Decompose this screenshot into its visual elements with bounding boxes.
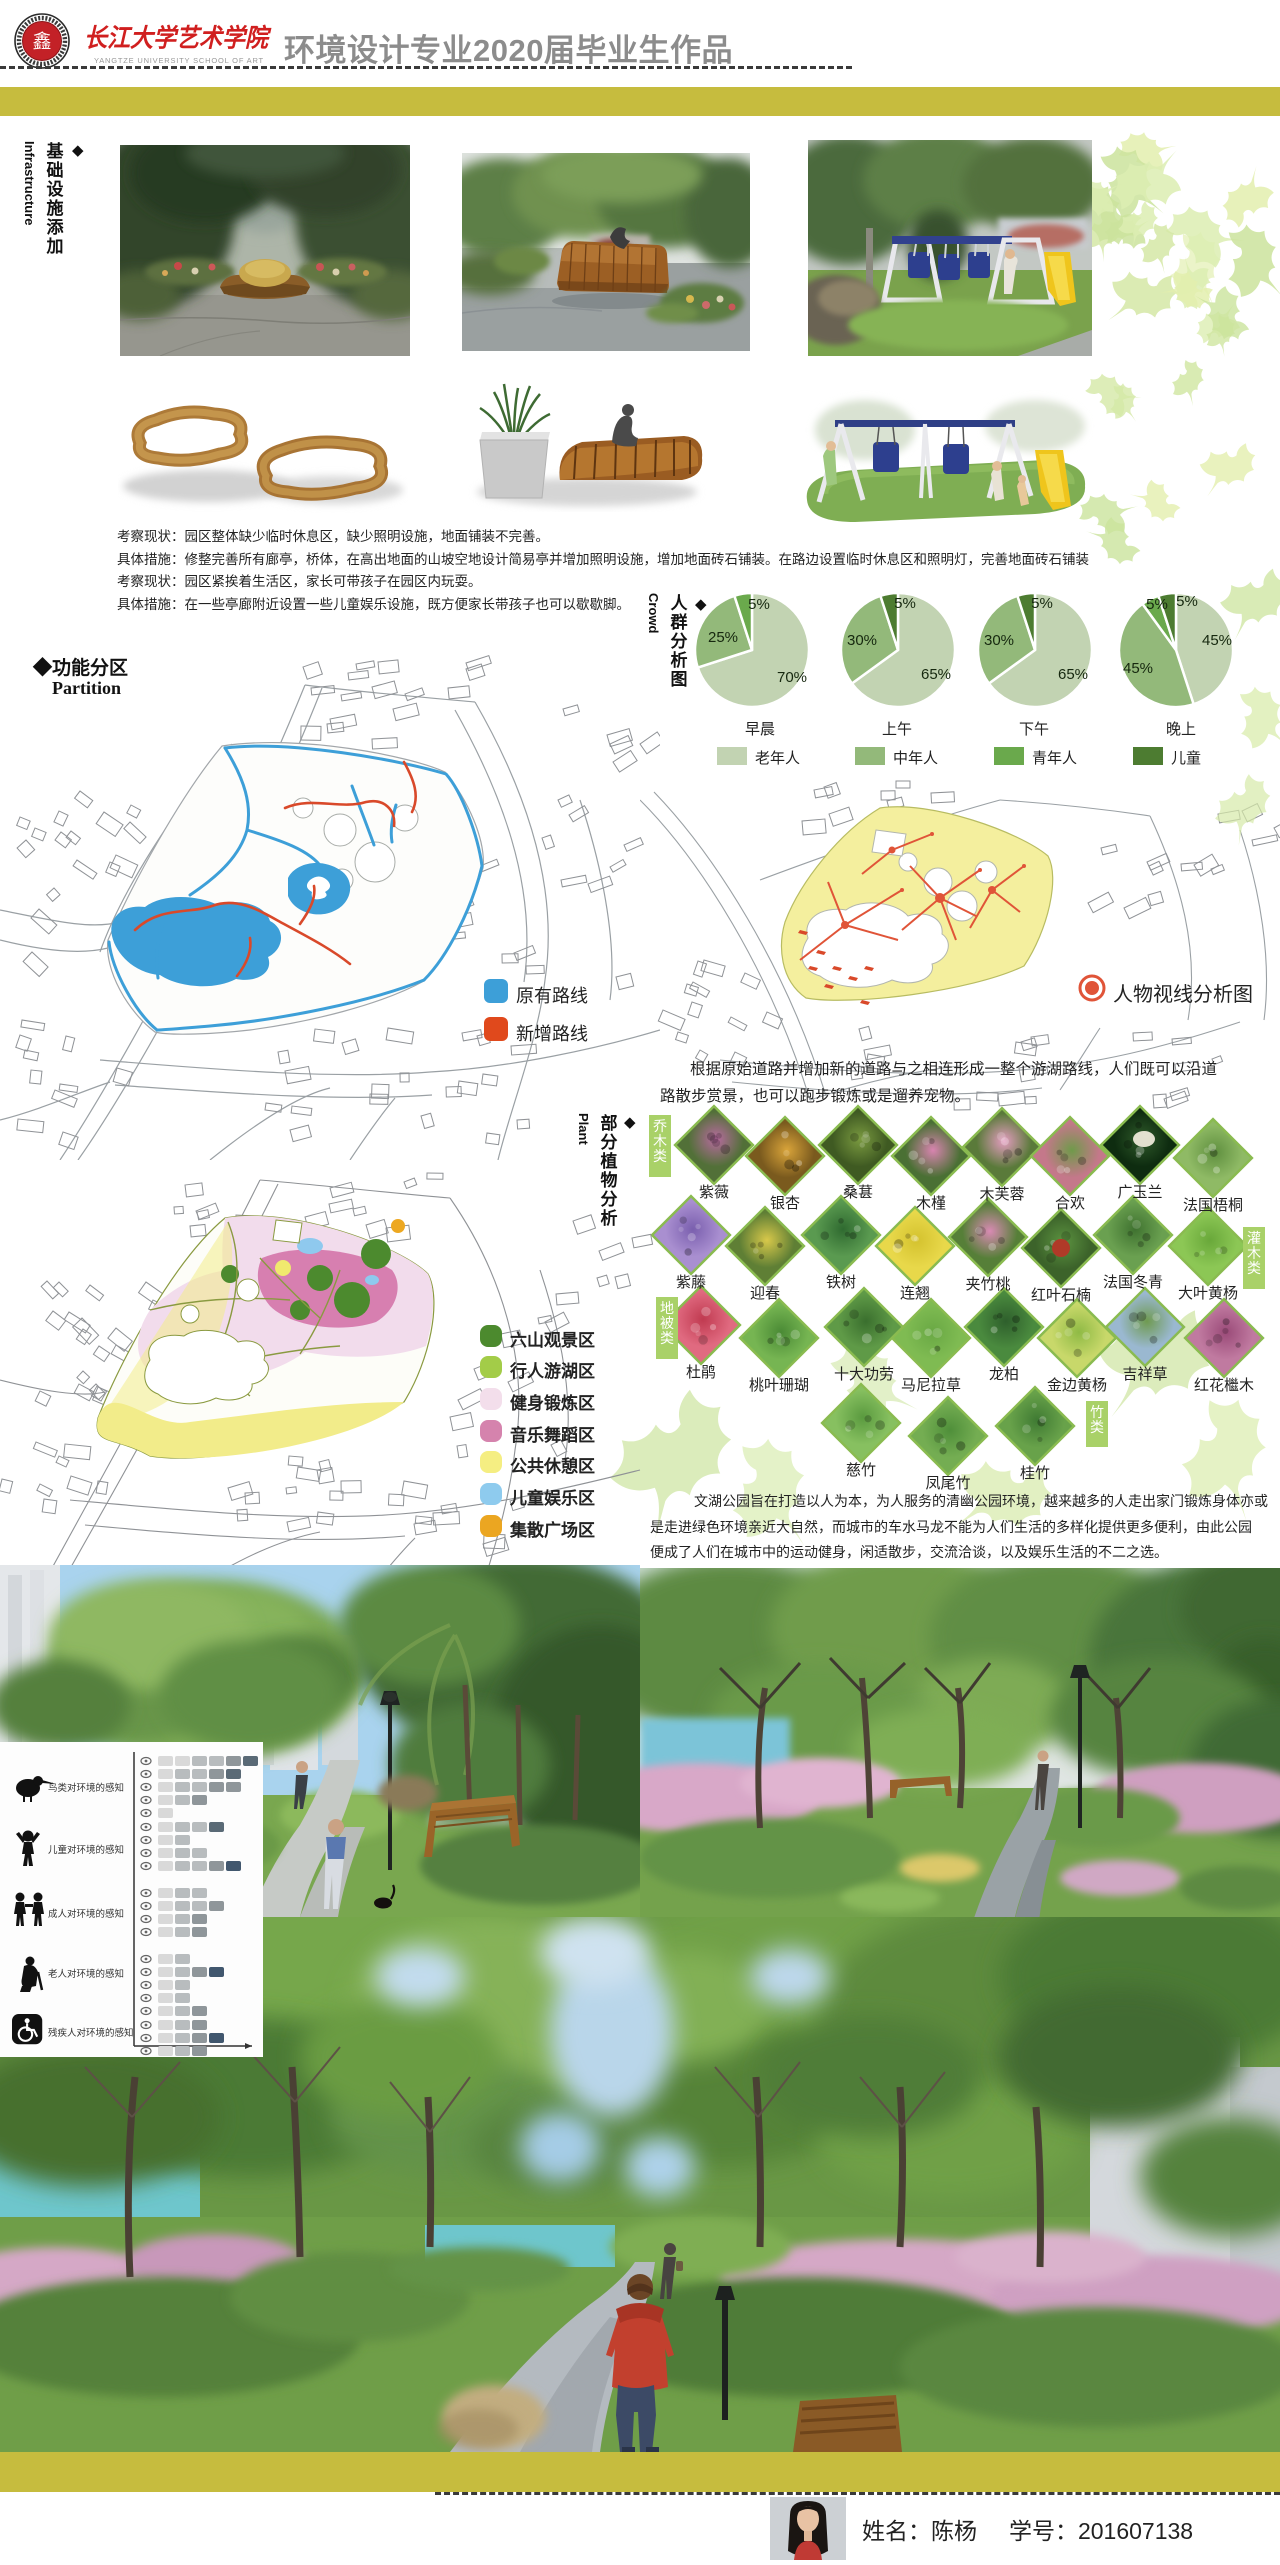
svg-text:老人对环境的感知: 老人对环境的感知 — [48, 1968, 124, 1980]
svg-text:紫薇: 紫薇 — [699, 1184, 729, 1201]
svg-text:法国冬青: 法国冬青 — [1103, 1274, 1163, 1291]
svg-text:鸟类对环境的感知: 鸟类对环境的感知 — [48, 1782, 124, 1794]
svg-text:夹竹桃: 夹竹桃 — [965, 1276, 1010, 1293]
svg-text:迎春: 迎春 — [750, 1285, 780, 1302]
svg-text:法国梧桐: 法国梧桐 — [1183, 1197, 1243, 1214]
svg-text:杜鹃: 杜鹃 — [686, 1364, 716, 1381]
svg-text:马尼拉草: 马尼拉草 — [901, 1377, 961, 1394]
svg-text:30%: 30% — [847, 632, 877, 649]
svg-text:5%: 5% — [1146, 596, 1168, 613]
svg-text:吉祥草: 吉祥草 — [1122, 1366, 1167, 1383]
svg-text:木槿: 木槿 — [916, 1195, 946, 1212]
svg-text:25%: 25% — [708, 629, 738, 646]
svg-text:龙柏: 龙柏 — [989, 1366, 1019, 1383]
svg-text:木芙蓉: 木芙蓉 — [979, 1186, 1024, 1203]
svg-text:儿童对环境的感知: 儿童对环境的感知 — [48, 1844, 124, 1856]
svg-text:十大功劳: 十大功劳 — [834, 1366, 894, 1383]
svg-text:银杏: 银杏 — [770, 1195, 800, 1212]
svg-text:连翘: 连翘 — [900, 1285, 930, 1302]
svg-text:5%: 5% — [1031, 595, 1053, 612]
svg-text:红花檵木: 红花檵木 — [1194, 1377, 1254, 1394]
svg-text:金边黄杨: 金边黄杨 — [1047, 1377, 1107, 1394]
svg-text:紫藤: 紫藤 — [676, 1274, 706, 1291]
svg-text:广玉兰: 广玉兰 — [1117, 1184, 1162, 1201]
svg-text:地被类: 地被类 — [660, 1300, 674, 1346]
svg-text:5%: 5% — [894, 595, 916, 612]
svg-text:5%: 5% — [748, 596, 770, 613]
svg-text:残疾人对环境的感知: 残疾人对环境的感知 — [48, 2027, 134, 2039]
svg-text:大叶黄杨: 大叶黄杨 — [1178, 1285, 1238, 1302]
svg-text:45%: 45% — [1123, 660, 1153, 677]
svg-text:桂竹: 桂竹 — [1020, 1465, 1050, 1482]
svg-text:桃叶珊瑚: 桃叶珊瑚 — [749, 1377, 809, 1394]
svg-text:桑葚: 桑葚 — [843, 1184, 873, 1201]
svg-text:65%: 65% — [921, 666, 951, 683]
svg-text:5%: 5% — [1176, 593, 1198, 610]
svg-text:鑫: 鑫 — [32, 31, 51, 53]
svg-text:灌木类: 灌木类 — [1247, 1230, 1261, 1276]
svg-text:红叶石楠: 红叶石楠 — [1031, 1287, 1091, 1304]
svg-text:竹类: 竹类 — [1090, 1404, 1104, 1435]
svg-text:铁树: 铁树 — [826, 1274, 856, 1291]
svg-text:合欢: 合欢 — [1055, 1195, 1085, 1212]
svg-text:慈竹: 慈竹 — [846, 1462, 876, 1479]
svg-text:65%: 65% — [1058, 666, 1088, 683]
svg-text:70%: 70% — [777, 669, 807, 686]
svg-text:30%: 30% — [984, 632, 1014, 649]
svg-text:成人对环境的感知: 成人对环境的感知 — [48, 1908, 124, 1920]
